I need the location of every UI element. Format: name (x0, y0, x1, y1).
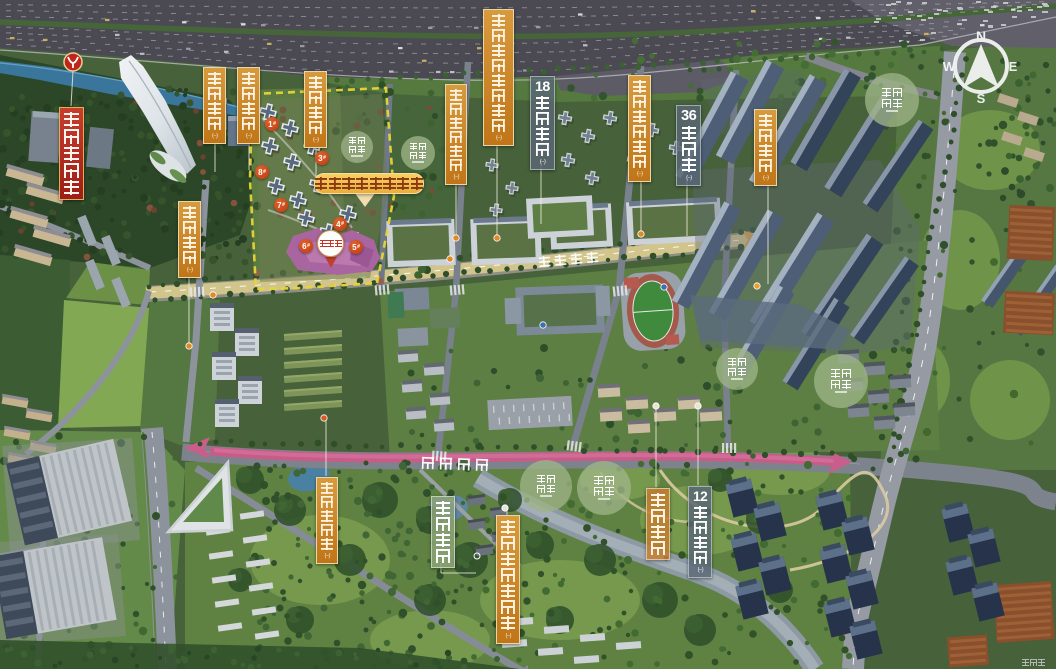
svg-text:E: E (1009, 59, 1018, 74)
svg-text:W: W (943, 59, 956, 74)
svg-text:S: S (977, 91, 986, 106)
svg-text:N: N (976, 28, 986, 44)
